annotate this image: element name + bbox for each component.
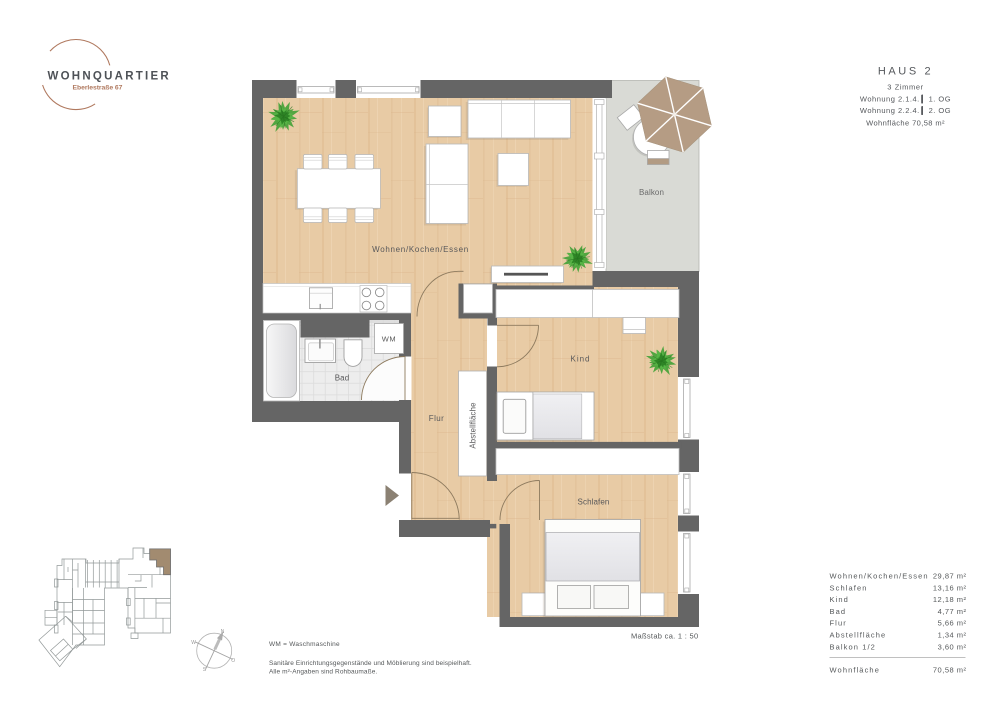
svg-text:70,58 m²: 70,58 m² — [933, 665, 967, 674]
svg-text:W: W — [191, 640, 196, 646]
svg-text:Balkon 1/2: Balkon 1/2 — [830, 642, 876, 651]
svg-text:Wohnung 2.2.4. ▏2. OG: Wohnung 2.2.4. ▏2. OG — [860, 105, 951, 115]
svg-text:WOHNQUARTIER: WOHNQUARTIER — [48, 71, 171, 83]
svg-text:3 Zimmer: 3 Zimmer — [887, 83, 923, 92]
svg-text:Schlafen: Schlafen — [830, 583, 868, 592]
svg-text:Flur: Flur — [830, 619, 847, 628]
svg-text:Wohnung 2.1.4. ▏1. OG: Wohnung 2.1.4. ▏1. OG — [860, 93, 951, 103]
svg-text:Eberlestraße 67: Eberlestraße 67 — [73, 84, 123, 91]
svg-text:Abstellfläche: Abstellfläche — [469, 402, 478, 448]
svg-text:Abstellfläche: Abstellfläche — [830, 631, 887, 640]
svg-text:Kind: Kind — [830, 595, 849, 604]
svg-text:Flur: Flur — [429, 414, 444, 423]
svg-text:Maßstab ca. 1 : 50: Maßstab ca. 1 : 50 — [631, 632, 699, 641]
svg-text:Wohnen/Kochen/Essen: Wohnen/Kochen/Essen — [830, 572, 929, 581]
svg-text:Bad: Bad — [830, 607, 847, 616]
svg-text:12,18 m²: 12,18 m² — [933, 595, 967, 604]
svg-text:Alle m²-Angaben sind Rohbaumaß: Alle m²-Angaben sind Rohbaumaße. — [269, 669, 377, 676]
svg-text:4,77 m²: 4,77 m² — [938, 607, 967, 616]
svg-text:Bad: Bad — [335, 374, 350, 383]
svg-text:Kind: Kind — [570, 355, 590, 364]
svg-text:29,87 m²: 29,87 m² — [933, 572, 967, 581]
svg-text:1,34 m²: 1,34 m² — [938, 631, 967, 640]
svg-text:O: O — [231, 658, 235, 664]
svg-text:WM = Waschmaschine: WM = Waschmaschine — [269, 641, 340, 648]
svg-text:Wohnfläche 70,58 m²: Wohnfläche 70,58 m² — [866, 119, 945, 128]
svg-text:HAUS 2: HAUS 2 — [878, 66, 933, 78]
svg-text:Schlafen: Schlafen — [578, 498, 610, 507]
svg-text:13,16 m²: 13,16 m² — [933, 583, 967, 592]
svg-text:Sanitäre Einrichtungsgegenstän: Sanitäre Einrichtungsgegenstände und Möb… — [269, 660, 472, 667]
svg-text:5,66 m²: 5,66 m² — [938, 619, 967, 628]
svg-text:Balkon: Balkon — [639, 188, 664, 197]
svg-text:WM: WM — [382, 335, 397, 344]
svg-text:3,60 m²: 3,60 m² — [938, 642, 967, 651]
svg-text:N: N — [221, 629, 225, 635]
svg-text:Wohnfläche: Wohnfläche — [830, 665, 880, 674]
svg-text:Wohnen/Kochen/Essen: Wohnen/Kochen/Essen — [372, 245, 469, 254]
